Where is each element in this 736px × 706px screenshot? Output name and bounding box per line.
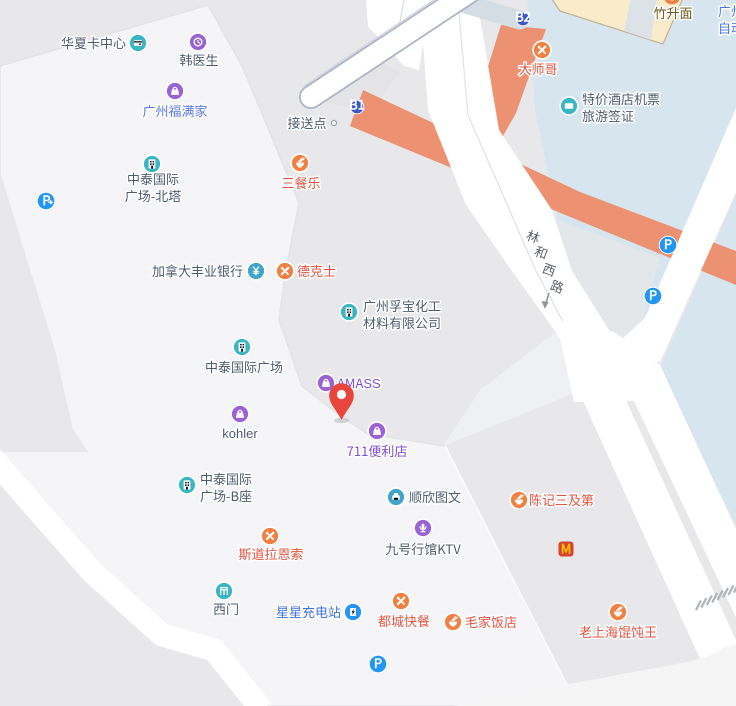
svg-text:华夏卡中心: 华夏卡中心 (61, 33, 126, 52)
svg-text:老上海馄饨王: 老上海馄饨王 (579, 622, 657, 641)
svg-text:西门: 西门 (213, 599, 239, 618)
svg-text:711便利店: 711便利店 (347, 441, 408, 460)
svg-text:竹升面: 竹升面 (653, 3, 692, 22)
svg-text:韩医生: 韩医生 (179, 50, 218, 69)
svg-text:材料有限公司: 材料有限公司 (363, 313, 441, 332)
svg-text:九号行馆KTV: 九号行馆KTV (385, 539, 461, 558)
svg-text:P: P (374, 653, 382, 672)
svg-text:旅游签证: 旅游签证 (582, 106, 634, 125)
svg-text:毛家饭店: 毛家饭店 (465, 612, 517, 631)
svg-text:顺欣图文: 顺欣图文 (409, 487, 461, 506)
svg-text:B2: B2 (515, 7, 531, 26)
svg-text:陈记三及第: 陈记三及第 (529, 490, 594, 509)
svg-text:星星充电站: 星星充电站 (276, 602, 341, 621)
svg-text:B1: B1 (349, 95, 365, 114)
svg-text:P: P (649, 285, 657, 304)
svg-text:M: M (561, 539, 572, 558)
svg-text:广场-北塔: 广场-北塔 (125, 186, 182, 205)
svg-text:都城快餐: 都城快餐 (378, 611, 430, 630)
svg-text:德克士: 德克士 (297, 261, 336, 280)
svg-text:广州福满家: 广州福满家 (142, 101, 207, 120)
svg-text:接送点: 接送点 (287, 113, 326, 132)
svg-text:自动: 自动 (718, 18, 736, 37)
svg-text:加拿大丰业银行: 加拿大丰业银行 (152, 261, 243, 280)
svg-text:大师哥: 大师哥 (518, 59, 557, 78)
svg-text:斯道拉恩索: 斯道拉恩索 (238, 544, 303, 563)
svg-text:P: P (664, 234, 672, 253)
svg-text:P: P (42, 190, 50, 209)
svg-text:kohler: kohler (222, 423, 258, 442)
svg-text:广场-B座: 广场-B座 (200, 486, 252, 505)
svg-text:三餐乐: 三餐乐 (281, 173, 320, 192)
svg-text:中泰国际广场: 中泰国际广场 (205, 357, 283, 376)
